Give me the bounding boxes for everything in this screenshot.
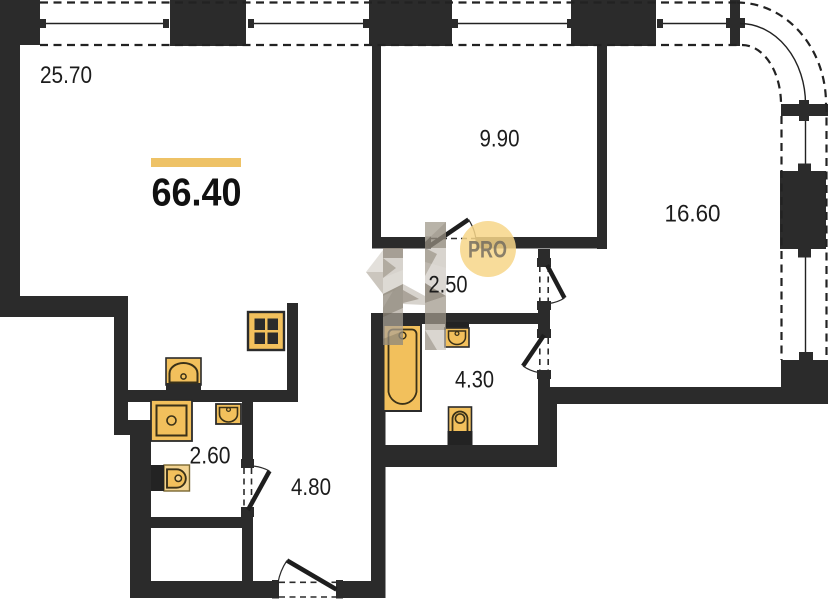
svg-text:66.40: 66.40	[152, 172, 242, 215]
svg-text:16.60: 16.60	[665, 201, 721, 228]
svg-text:9.90: 9.90	[480, 126, 520, 153]
svg-text:PRO: PRO	[468, 237, 507, 264]
svg-text:4.30: 4.30	[455, 367, 494, 394]
svg-text:2.50: 2.50	[429, 272, 468, 299]
svg-text:25.70: 25.70	[40, 62, 92, 89]
svg-text:4.80: 4.80	[291, 474, 331, 501]
svg-text:2.60: 2.60	[190, 443, 231, 470]
